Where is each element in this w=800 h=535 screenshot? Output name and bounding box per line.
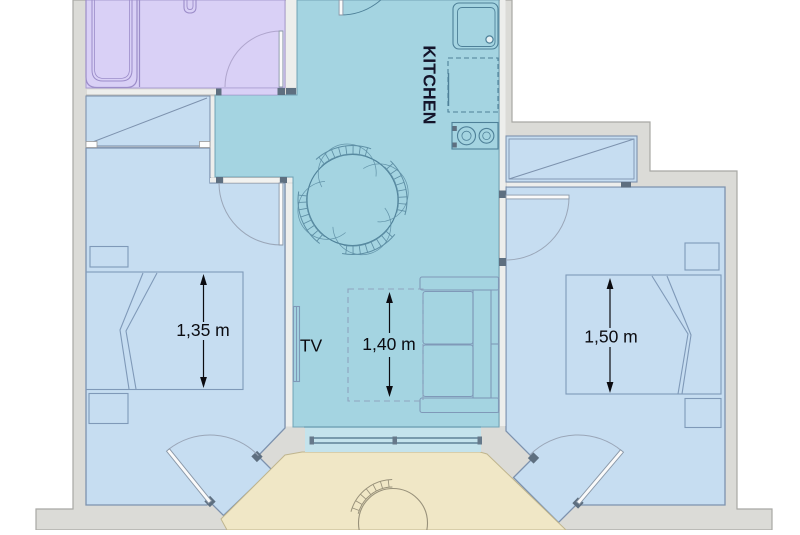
svg-text:KITCHEN: KITCHEN	[420, 45, 440, 124]
svg-text:1,40 m: 1,40 m	[362, 334, 416, 354]
svg-text:1,35 m: 1,35 m	[176, 320, 230, 340]
svg-text:1,50 m: 1,50 m	[584, 327, 638, 347]
svg-text:TV: TV	[300, 336, 323, 356]
